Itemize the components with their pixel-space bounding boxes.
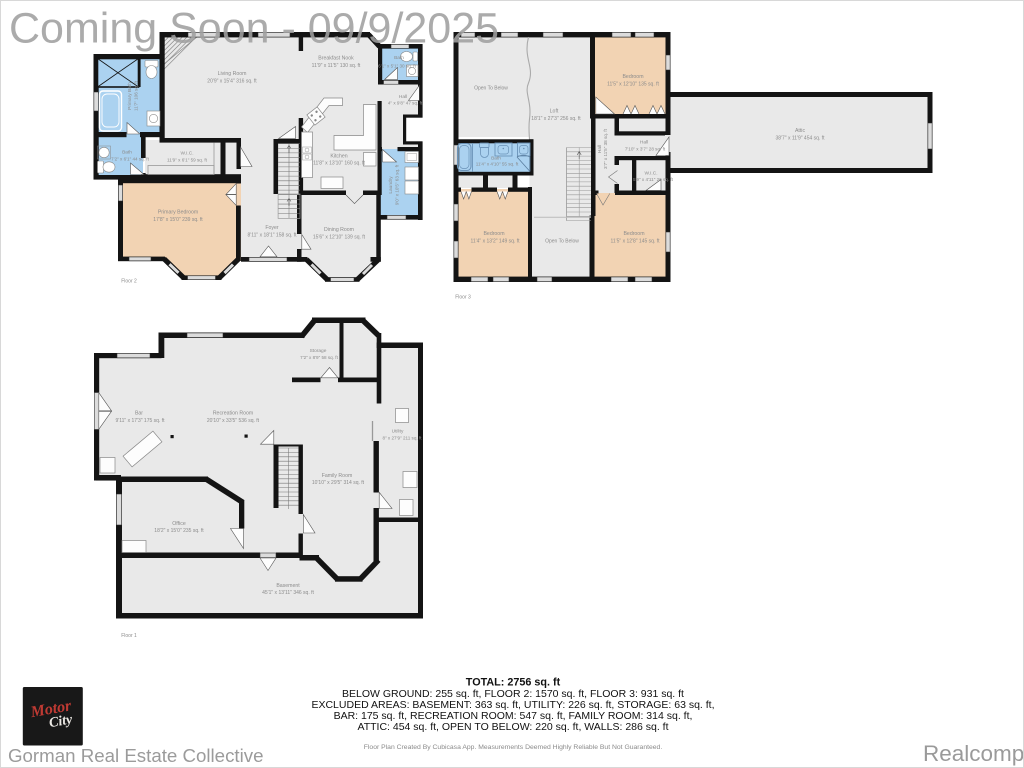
svg-text:7'2" x 6'1" 44 sq. ft: 7'2" x 6'1" 44 sq. ft	[111, 157, 149, 162]
svg-text:11'8" x 13'10" 160 sq. ft: 11'8" x 13'10" 160 sq. ft	[313, 161, 365, 167]
svg-text:Open To Below: Open To Below	[545, 239, 579, 245]
svg-text:10'10" x 29'5" 314 sq. ft: 10'10" x 29'5" 314 sq. ft	[312, 480, 365, 486]
svg-text:Breakfast Nook: Breakfast Nook	[318, 56, 354, 62]
svg-text:18'1" x 27'3" 256 sq. ft: 18'1" x 27'3" 256 sq. ft	[531, 116, 581, 122]
svg-text:Bath: Bath	[122, 150, 132, 156]
svg-text:11'9" x 6'1" 59 sq. ft: 11'9" x 6'1" 59 sq. ft	[167, 158, 208, 163]
svg-text:7'10" x 3'7" 28 sq. ft: 7'10" x 3'7" 28 sq. ft	[625, 147, 666, 152]
svg-text:11'4" x 4'10" 55 sq. ft: 11'4" x 4'10" 55 sq. ft	[476, 162, 519, 167]
svg-text:Bath: Bath	[394, 55, 404, 61]
svg-text:4" x 9'8" 47 sq. ft: 4" x 9'8" 47 sq. ft	[388, 101, 423, 106]
svg-text:Living Room: Living Room	[218, 71, 247, 77]
svg-text:Bedroom: Bedroom	[622, 74, 643, 80]
svg-text:8'11" x 18'1" 158 sq. ft: 8'11" x 18'1" 158 sq. ft	[247, 233, 297, 239]
svg-text:Floor 2: Floor 2	[121, 279, 137, 285]
svg-text:45'1" x 13'11" 346 sq. ft: 45'1" x 13'11" 346 sq. ft	[262, 590, 314, 596]
svg-text:Floor 3: Floor 3	[455, 295, 471, 301]
svg-text:20'10" x 33'5" 536 sq. ft: 20'10" x 33'5" 536 sq. ft	[207, 418, 260, 424]
svg-text:Attic: Attic	[795, 128, 805, 134]
svg-text:11'4" x 13'2" 149 sq. ft: 11'4" x 13'2" 149 sq. ft	[470, 239, 520, 245]
svg-text:Open To Below: Open To Below	[474, 86, 508, 92]
svg-text:Hall: Hall	[399, 94, 407, 100]
svg-text:Primary Bath: Primary Bath	[127, 82, 133, 110]
svg-text:38'7" x 11'9" 454 sq. ft: 38'7" x 11'9" 454 sq. ft	[775, 136, 825, 142]
svg-text:Office: Office	[172, 521, 186, 527]
svg-text:Gorman Real Estate Collective: Gorman Real Estate Collective	[8, 745, 264, 766]
svg-text:Bedroom: Bedroom	[623, 231, 644, 237]
svg-text:TOTAL: 2756 sq. ft: TOTAL: 2756 sq. ft	[466, 677, 561, 689]
svg-text:ATTIC: 454 sq. ft, OPEN TO BEL: ATTIC: 454 sq. ft, OPEN TO BELOW: 220 sq…	[357, 721, 668, 733]
svg-text:11'7" 106 sq. ft: 11'7" 106 sq. ft	[134, 80, 139, 111]
svg-text:Utility: Utility	[392, 429, 404, 435]
svg-text:Laundry: Laundry	[388, 176, 394, 194]
svg-text:9'0" x 10'5" 63 sq. ft: 9'0" x 10'5" 63 sq. ft	[395, 164, 400, 205]
svg-text:11'5" x 12'10" 135 sq. ft: 11'5" x 12'10" 135 sq. ft	[607, 82, 659, 88]
svg-text:Kitchen: Kitchen	[330, 154, 347, 160]
svg-text:Floor Plan Created By Cubicasa: Floor Plan Created By Cubicasa App. Meas…	[364, 744, 663, 751]
svg-text:11'5" x 12'8" 145 sq. ft: 11'5" x 12'8" 145 sq. ft	[610, 239, 660, 245]
svg-text:Realcomp: Realcomp	[923, 741, 1023, 766]
svg-text:Hall: Hall	[640, 140, 648, 146]
svg-text:5'9" x 4'11" 26 sq. ft: 5'9" x 4'11" 26 sq. ft	[633, 177, 674, 182]
svg-text:6'1" x 5'1" 30 sq. ft: 6'1" x 5'1" 30 sq. ft	[378, 64, 416, 69]
svg-text:Storage: Storage	[310, 348, 327, 354]
svg-text:Basement: Basement	[276, 583, 300, 589]
svg-text:11'9" x 11'5" 130 sq. ft: 11'9" x 11'5" 130 sq. ft	[312, 63, 361, 69]
svg-text:Loft: Loft	[550, 109, 559, 115]
svg-text:Bar: Bar	[135, 411, 143, 417]
svg-text:W.I.C.: W.I.C.	[180, 151, 193, 157]
svg-text:7'2" x 8'9" 58 sq. ft: 7'2" x 8'9" 58 sq. ft	[300, 355, 338, 360]
svg-text:20'9" x 15'4" 316 sq. ft: 20'9" x 15'4" 316 sq. ft	[207, 79, 257, 85]
svg-text:8" x 27'9" 211 sq. ft: 8" x 27'9" 211 sq. ft	[382, 436, 422, 441]
svg-text:Primary Bedroom: Primary Bedroom	[158, 210, 198, 216]
svg-text:Coming Soon - 09/9/2025: Coming Soon - 09/9/2025	[9, 5, 499, 53]
svg-text:Recreation Room: Recreation Room	[213, 411, 253, 417]
svg-text:18'2" x 15'0" 235 sq. ft: 18'2" x 15'0" 235 sq. ft	[154, 528, 204, 534]
svg-text:17'8" x 15'0" 239 sq. ft: 17'8" x 15'0" 239 sq. ft	[153, 217, 203, 223]
svg-text:Dining Room: Dining Room	[324, 227, 354, 233]
svg-text:Floor 1: Floor 1	[121, 633, 137, 639]
svg-text:15'6" x 12'10" 139 sq. ft: 15'6" x 12'10" 139 sq. ft	[313, 235, 366, 241]
svg-text:9'11" x 17'3" 175 sq. ft: 9'11" x 17'3" 175 sq. ft	[115, 418, 165, 424]
svg-text:Family Room: Family Room	[322, 473, 353, 479]
svg-text:Bedroom: Bedroom	[483, 231, 504, 237]
svg-text:W.I.C.: W.I.C.	[644, 171, 657, 177]
svg-text:Foyer: Foyer	[265, 225, 279, 231]
svg-text:3'7" x 11'5" 38 sq. ft: 3'7" x 11'5" 38 sq. ft	[603, 128, 608, 169]
